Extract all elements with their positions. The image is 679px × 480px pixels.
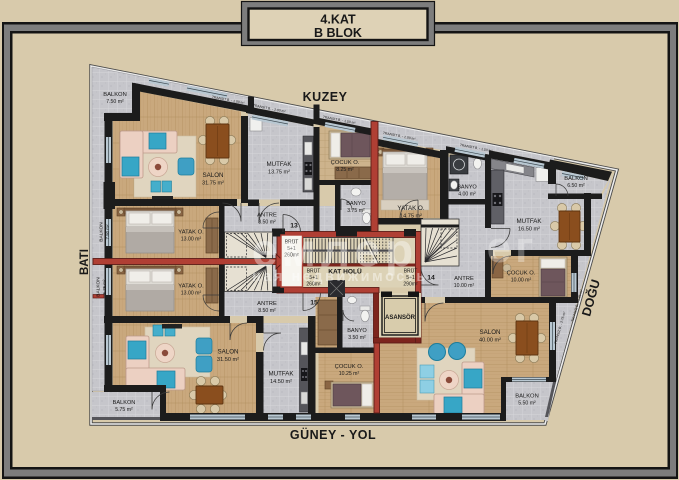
svg-text:SALON: SALON: [480, 329, 501, 336]
svg-text:ÇOCUK O.: ÇOCUK O.: [331, 160, 360, 166]
svg-text:ANTRE: ANTRE: [257, 213, 277, 219]
svg-text:5.50 m²: 5.50 m²: [518, 401, 536, 407]
svg-text:5.75 m²: 5.75 m²: [102, 279, 107, 294]
svg-text:ег: ег: [487, 223, 538, 272]
svg-text:13.00 m²: 13.00 m²: [181, 237, 202, 243]
svg-text:BALKON: BALKON: [564, 176, 588, 182]
svg-text:BATI: BATI: [79, 249, 91, 275]
svg-text:BALKON: BALKON: [515, 394, 539, 400]
svg-text:3.75 m²: 3.75 m²: [347, 208, 365, 214]
svg-text:ASANSÖR: ASANSÖR: [385, 314, 416, 321]
svg-text:7.50 m²: 7.50 m²: [106, 99, 124, 105]
svg-text:YATAK O.: YATAK O.: [178, 284, 204, 290]
svg-text:15: 15: [310, 300, 318, 307]
svg-text:10.00 m²: 10.00 m²: [454, 283, 475, 289]
svg-text:14: 14: [427, 275, 435, 282]
svg-text:13.75 m²: 13.75 m²: [268, 169, 290, 175]
svg-text:31.75 m²: 31.75 m²: [202, 180, 224, 186]
svg-text:8.50 m²: 8.50 m²: [258, 308, 276, 314]
svg-text:YATAK O.: YATAK O.: [397, 205, 424, 212]
svg-text:6.50 m²: 6.50 m²: [567, 183, 585, 189]
svg-text:YATAK O.: YATAK O.: [178, 230, 204, 236]
svg-text:B BLOK: B BLOK: [314, 26, 362, 40]
svg-text:BALKON: BALKON: [96, 277, 102, 297]
svg-text:BANYO: BANYO: [347, 328, 367, 334]
svg-text:BANYO: BANYO: [457, 185, 477, 191]
svg-text:8.25 m²: 8.25 m²: [336, 167, 354, 173]
svg-text:14.75 m²: 14.75 m²: [400, 213, 422, 219]
svg-text:BALKON: BALKON: [103, 92, 127, 98]
svg-text:3.50 m²: 3.50 m²: [348, 335, 366, 341]
svg-text:7.50 m²: 7.50 m²: [105, 224, 110, 239]
svg-text:40.00 m²: 40.00 m²: [479, 337, 501, 343]
svg-text:10.00 m²: 10.00 m²: [511, 278, 532, 284]
svg-text:BALKON: BALKON: [99, 222, 105, 242]
svg-text:ANTRE: ANTRE: [257, 301, 277, 307]
svg-text:4.KAT: 4.KAT: [320, 13, 356, 27]
svg-text:SALON: SALON: [203, 172, 224, 179]
svg-text:BALKON: BALKON: [113, 400, 136, 406]
svg-text:MUTFAK: MUTFAK: [266, 161, 292, 168]
svg-text:14.50 m²: 14.50 m²: [270, 379, 292, 385]
svg-text:BANYO: BANYO: [346, 201, 366, 207]
svg-text:ANTRE: ANTRE: [454, 276, 474, 282]
svg-text:4.00 m²: 4.00 m²: [458, 192, 476, 198]
svg-text:ная недвижимость: ная недвижимость: [252, 269, 428, 285]
svg-text:SALON: SALON: [218, 349, 239, 356]
svg-text:10.25 m²: 10.25 m²: [339, 371, 360, 377]
svg-text:KUZEY: KUZEY: [303, 90, 348, 104]
svg-text:GÜNEY - YOL: GÜNEY - YOL: [290, 427, 376, 442]
svg-text:MUTFAK: MUTFAK: [268, 371, 294, 378]
svg-text:13.00 m²: 13.00 m²: [181, 291, 202, 297]
svg-text:ÇOCUK O.: ÇOCUK O.: [335, 364, 364, 370]
svg-text:31.50 m²: 31.50 m²: [217, 357, 239, 363]
svg-text:5.75 m²: 5.75 m²: [115, 407, 133, 413]
